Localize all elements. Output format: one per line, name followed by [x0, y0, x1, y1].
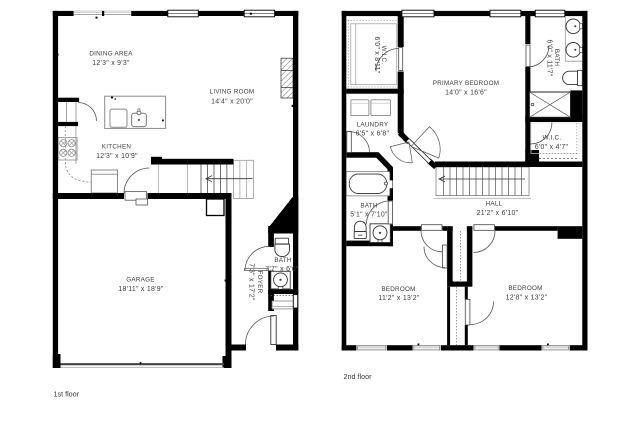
svg-text:BEDROOM: BEDROOM [508, 285, 542, 292]
svg-text:W.I.C.: W.I.C. [543, 135, 562, 142]
svg-text:12'8" x 13'2": 12'8" x 13'2" [506, 294, 548, 301]
svg-text:BEDROOM: BEDROOM [381, 286, 415, 293]
svg-text:BATH: BATH [553, 49, 560, 67]
svg-text:21'2" x 6'10": 21'2" x 6'10" [477, 210, 519, 217]
svg-text:2nd floor: 2nd floor [344, 372, 373, 381]
svg-text:W.I.C.: W.I.C. [380, 46, 387, 65]
svg-text:12'3" x 10'9": 12'3" x 10'9" [96, 153, 138, 160]
svg-text:BATH: BATH [274, 257, 292, 264]
svg-text:7'3" x 17'2": 7'3" x 17'2" [248, 263, 255, 301]
svg-text:1st floor: 1st floor [54, 389, 80, 398]
svg-text:HALL: HALL [486, 201, 503, 208]
svg-text:6'0" x 8'11": 6'0" x 8'11" [373, 36, 380, 73]
svg-text:14'0" x 16'6": 14'0" x 16'6" [445, 90, 487, 97]
svg-text:6'0" x 11'7": 6'0" x 11'7" [546, 39, 553, 76]
svg-text:KITCHEN: KITCHEN [102, 144, 132, 151]
svg-text:7'7" x 6'0": 7'7" x 6'0" [265, 266, 299, 273]
svg-text:LIVING ROOM: LIVING ROOM [210, 89, 255, 96]
svg-text:PRIMARY BEDROOM: PRIMARY BEDROOM [433, 80, 500, 87]
svg-text:BATH: BATH [360, 202, 378, 209]
svg-text:6'5" x 6'8": 6'5" x 6'8" [356, 131, 390, 138]
svg-text:5'1" x 7'10": 5'1" x 7'10" [350, 212, 388, 219]
svg-text:12'3" x 9'3": 12'3" x 9'3" [92, 60, 130, 67]
svg-text:DINING AREA: DINING AREA [89, 51, 133, 58]
svg-text:LAUNDRY: LAUNDRY [357, 121, 389, 128]
svg-text:FOYER: FOYER [256, 271, 263, 294]
svg-text:6'0" x 4'7": 6'0" x 4'7" [535, 144, 569, 151]
svg-text:18'11" x 18'9": 18'11" x 18'9" [118, 286, 164, 293]
svg-text:GARAGE: GARAGE [126, 277, 154, 284]
svg-text:11'2" x 13'2": 11'2" x 13'2" [378, 295, 419, 302]
svg-text:14'4" x 20'0": 14'4" x 20'0" [211, 99, 253, 106]
